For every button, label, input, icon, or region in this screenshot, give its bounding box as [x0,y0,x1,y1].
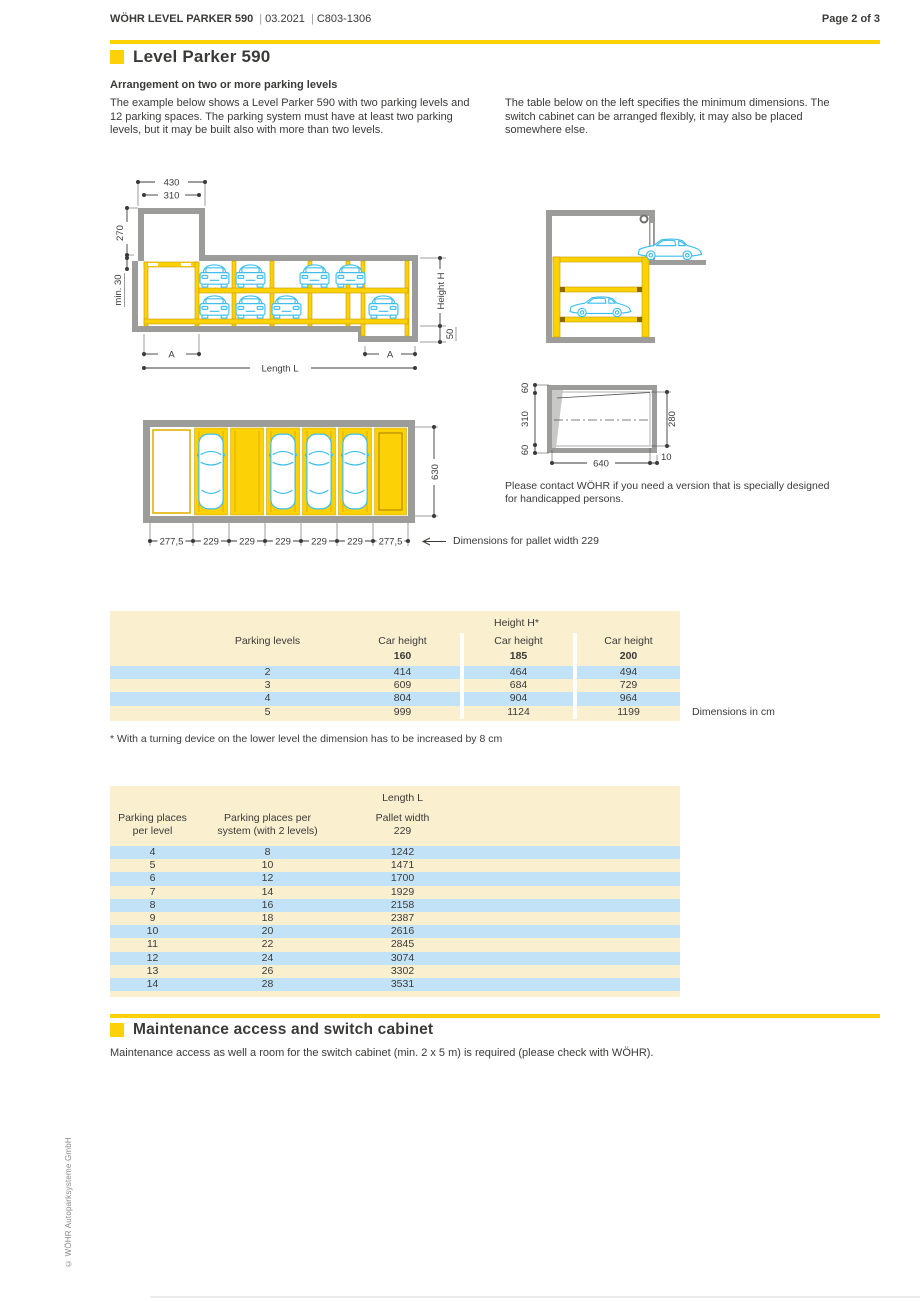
dim-label: 630 [430,464,441,480]
dim-label: Length L [262,364,299,375]
dim-label: 430 [164,178,180,189]
table-cell: 10 [110,925,195,938]
table-group-header: Height H* [110,611,680,633]
dim-label: A [387,350,394,361]
table-row: 599911241199 [110,706,680,719]
height-table: Height H* Parking levels Car height Car … [110,611,680,721]
table-row: 12243074 [110,952,680,965]
dim-label: 229 [311,537,327,548]
pallet-width-note-text: Dimensions for pallet width 229 [453,535,599,547]
table-cell: 7 [110,886,195,899]
dim-label: 229 [239,537,255,548]
table-cell: 28 [195,978,340,991]
table-cell: 414 [345,666,460,679]
unit-note: Dimensions in cm [692,706,775,719]
table-cell: 3074 [340,952,465,965]
entry-view-diagram [542,203,717,353]
table-cell: 24 [195,952,340,965]
table-row: 2414464494 [110,666,680,679]
table-row: 10202616 [110,925,680,938]
car-icon [341,434,369,509]
yellow-square-icon [110,1023,124,1037]
table-row: 8162158 [110,899,680,912]
section2-header: Maintenance access and switch cabinet [110,1021,433,1039]
dim-label: 10 [661,452,672,463]
column-header: Car height [460,633,573,649]
copyright: © WÖHR Autoparksysteme GmbH [64,1136,73,1268]
separator: | [308,13,317,25]
car-icon [197,434,225,509]
table-row: 5101471 [110,859,680,872]
paragraph-left: The example below shows a Level Parker 5… [110,97,472,138]
car-icon [200,296,229,318]
document-page: { "header": { "brand": "WÖHR LEVEL PARKE… [0,0,920,1301]
table-header-row: 160 185 200 [110,649,680,666]
table-body: 4812425101471612170071419298162158918238… [110,846,680,991]
car-icon [305,434,333,509]
document-header: WÖHR LEVEL PARKER 590 |03.2021 |C803-130… [110,13,371,25]
table-cell: 12 [110,952,195,965]
table-cell: 1471 [340,859,465,872]
car-icon [638,239,701,259]
table-header-row: Parking places per level Parking places … [110,808,680,846]
column-header: Car height [345,633,460,649]
separator: | [256,13,265,25]
table-cell: 804 [345,692,460,705]
side-view-dimensions: 430 310 270 min. 30 Height H 50 A A Leng… [113,178,456,375]
table-cell: 2 [110,666,345,679]
column-header: Parking places per system (with 2 levels… [195,812,340,846]
table-cell: 1242 [340,846,465,859]
car-icon [200,265,229,287]
table-cell: 729 [573,679,680,692]
table-cell: 10 [195,859,340,872]
page-indicator: Page 2 of 3 [822,13,880,25]
column-header: Parking places per level [110,812,195,846]
car-icon [570,297,631,317]
car-icon [236,265,265,287]
dim-label: 50 [445,329,456,340]
column-header: 200 [573,649,680,666]
table-body: 2414464494360968472948049049645999112411… [110,666,680,719]
column-header: 185 [460,649,573,666]
page-bottom-line [150,1296,920,1298]
paragraph-right: The table below on the left specifies th… [505,97,850,138]
table-cell: 1199 [573,706,680,719]
column-header: Car height [573,633,680,649]
column-header: Pallet width 229 [340,812,465,846]
table-cell: 5 [110,706,345,719]
dim-label: 640 [593,459,609,470]
section2-body: Maintenance access as well a room for th… [110,1047,880,1061]
dim-label: 60 [520,445,531,456]
table-row: 13263302 [110,965,680,978]
table-cell: 964 [573,692,680,705]
car-icon [369,296,398,318]
table-cell: 684 [460,679,573,692]
table-cell: 1929 [340,886,465,899]
pallet-width-note: Dimensions for pallet width 229 [421,535,599,547]
dim-label: min. 30 [113,274,124,305]
table-cell: 4 [110,846,195,859]
table-row: 7141929 [110,886,680,899]
table-cell: 2387 [340,912,465,925]
table-cell: 3 [110,679,345,692]
table-cell: 2845 [340,938,465,951]
side-view-diagram: 430 310 270 min. 30 Height H 50 A A Leng… [108,168,473,380]
table-cell: 1124 [460,706,573,719]
car-icon [236,296,265,318]
dim-label: 277,5 [160,537,184,548]
table-cell: 8 [195,846,340,859]
section1-title: Level Parker 590 [133,47,270,67]
table-cell: 16 [195,899,340,912]
table-cell: 18 [195,912,340,925]
table-row: 11222845 [110,938,680,951]
section2-title: Maintenance access and switch cabinet [133,1021,433,1039]
space-plan-diagram: 60 310 60 280 640 10 [505,368,715,476]
table-row: 3609684729 [110,679,680,692]
subheading: Arrangement on two or more parking level… [110,79,337,91]
column-header: Parking levels [110,633,345,649]
length-table: Length L Parking places per level Parkin… [110,786,680,997]
dim-label: 229 [275,537,291,548]
car-icon [300,265,329,287]
table-cell: 494 [573,666,680,679]
handicap-note: Please contact WÖHR if you need a versio… [505,480,835,506]
table-row: 14283531 [110,978,680,991]
doc-title: WÖHR LEVEL PARKER 590 [110,13,253,25]
dim-label: 280 [667,411,678,427]
table-cell: 1700 [340,872,465,885]
table-cell: 999 [345,706,460,719]
dim-label: 277,5 [379,537,403,548]
table-header-row: Parking levels Car height Car height Car… [110,633,680,649]
table-cell: 26 [195,965,340,978]
table-cell: 11 [110,938,195,951]
car-icon [269,434,297,509]
table-cell: 3531 [340,978,465,991]
doc-date: 03.2021 [265,13,305,25]
entry-view-walls [546,210,706,343]
dim-label: Height H [436,272,447,309]
dim-label: 310 [520,411,531,427]
table-group-header: Length L [110,786,680,808]
table-cell: 14 [195,886,340,899]
table-cell: 22 [195,938,340,951]
table-cell: 9 [110,912,195,925]
table-row: 6121700 [110,872,680,885]
dim-label: 60 [520,383,531,394]
left-arrow-icon [421,537,447,546]
table-cell: 13 [110,965,195,978]
table-row: 9182387 [110,912,680,925]
table-cell: 8 [110,899,195,912]
section-rule [110,1014,880,1018]
table-row: 4804904964 [110,692,680,705]
table-cell: 14 [110,978,195,991]
dim-label: 229 [203,537,219,548]
table-row: 481242 [110,846,680,859]
table-cell: 20 [195,925,340,938]
car-icon [272,296,301,318]
table-cell: 609 [345,679,460,692]
section-rule [110,40,880,44]
dim-label: 270 [115,225,126,241]
table-cell: 904 [460,692,573,705]
car-icon [336,265,365,287]
table1-footnote: * With a turning device on the lower lev… [110,733,502,746]
table-cell: 5 [110,859,195,872]
yellow-square-icon [110,50,124,64]
doc-code: C803-1306 [317,13,371,25]
table-cell: 2616 [340,925,465,938]
table-cell: 6 [110,872,195,885]
dim-label: 229 [347,537,363,548]
dim-label: 310 [164,191,180,202]
table-cell: 4 [110,692,345,705]
table-cell: 12 [195,872,340,885]
column-header [110,649,345,666]
section1-header: Level Parker 590 [110,47,270,67]
column-header: 160 [345,649,460,666]
top-view-diagram: 630 277,5 229 229 229 229 229 277,5 [108,403,478,555]
dim-label: A [168,350,175,361]
table-cell: 464 [460,666,573,679]
table-cell: 2158 [340,899,465,912]
table-cell: 3302 [340,965,465,978]
side-view-structure [144,261,409,336]
